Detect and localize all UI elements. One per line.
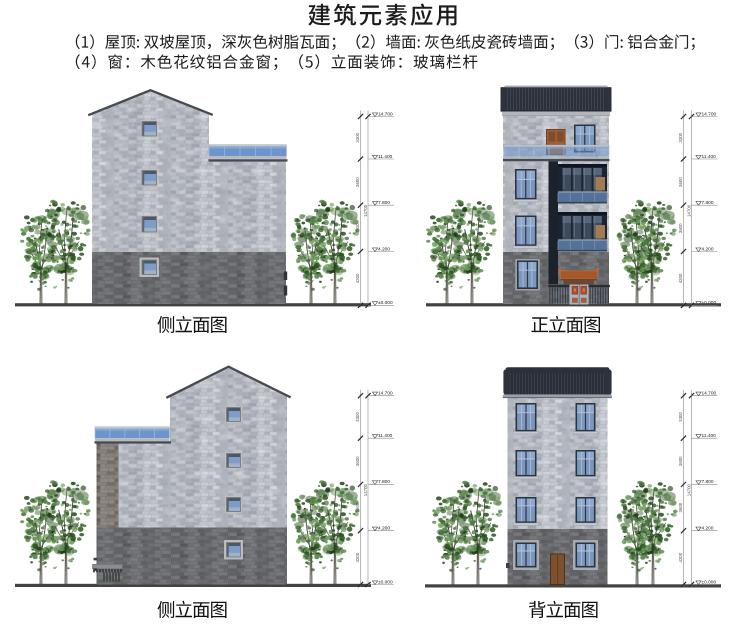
- svg-text:14.700: 14.700: [702, 391, 717, 397]
- svg-text:3600: 3600: [355, 502, 360, 512]
- svg-text:3600: 3600: [678, 223, 683, 233]
- svg-text:4.200: 4.200: [702, 526, 714, 532]
- svg-text:3600: 3600: [678, 177, 683, 187]
- svg-text:3300: 3300: [355, 132, 360, 142]
- svg-text:4.200: 4.200: [378, 526, 390, 532]
- svg-text:4200: 4200: [355, 273, 360, 283]
- svg-text:3600: 3600: [355, 456, 360, 466]
- svg-text:3600: 3600: [678, 502, 683, 512]
- svg-text:14700: 14700: [363, 483, 368, 496]
- svg-text:11.400: 11.400: [378, 154, 393, 160]
- svg-text:14700: 14700: [686, 483, 691, 496]
- svg-text:4.200: 4.200: [702, 246, 714, 252]
- svg-text:14.700: 14.700: [378, 391, 393, 397]
- svg-text:7.800: 7.800: [378, 200, 390, 206]
- svg-text:3600: 3600: [678, 456, 683, 466]
- svg-text:14.700: 14.700: [702, 111, 717, 117]
- svg-text:11.400: 11.400: [378, 433, 393, 439]
- svg-text:±0.000: ±0.000: [702, 579, 717, 585]
- svg-text:7.800: 7.800: [702, 479, 714, 485]
- svg-text:11.400: 11.400: [702, 433, 717, 439]
- svg-text:4200: 4200: [678, 273, 683, 283]
- svg-text:4200: 4200: [678, 552, 683, 562]
- svg-text:3600: 3600: [355, 177, 360, 187]
- svg-text:11.400: 11.400: [702, 154, 717, 160]
- svg-text:4200: 4200: [355, 552, 360, 562]
- svg-text:14700: 14700: [363, 204, 368, 217]
- svg-text:3600: 3600: [355, 223, 360, 233]
- svg-text:4.200: 4.200: [378, 246, 390, 252]
- svg-text:3300: 3300: [355, 412, 360, 422]
- svg-text:3300: 3300: [678, 412, 683, 422]
- svg-text:7.800: 7.800: [378, 479, 390, 485]
- svg-text:±0.000: ±0.000: [702, 300, 717, 306]
- svg-text:7.800: 7.800: [702, 200, 714, 206]
- svg-text:±0.000: ±0.000: [378, 579, 393, 585]
- svg-text:14.700: 14.700: [378, 111, 393, 117]
- svg-text:14700: 14700: [686, 204, 691, 217]
- svg-text:±0.000: ±0.000: [378, 300, 393, 306]
- svg-text:3300: 3300: [678, 132, 683, 142]
